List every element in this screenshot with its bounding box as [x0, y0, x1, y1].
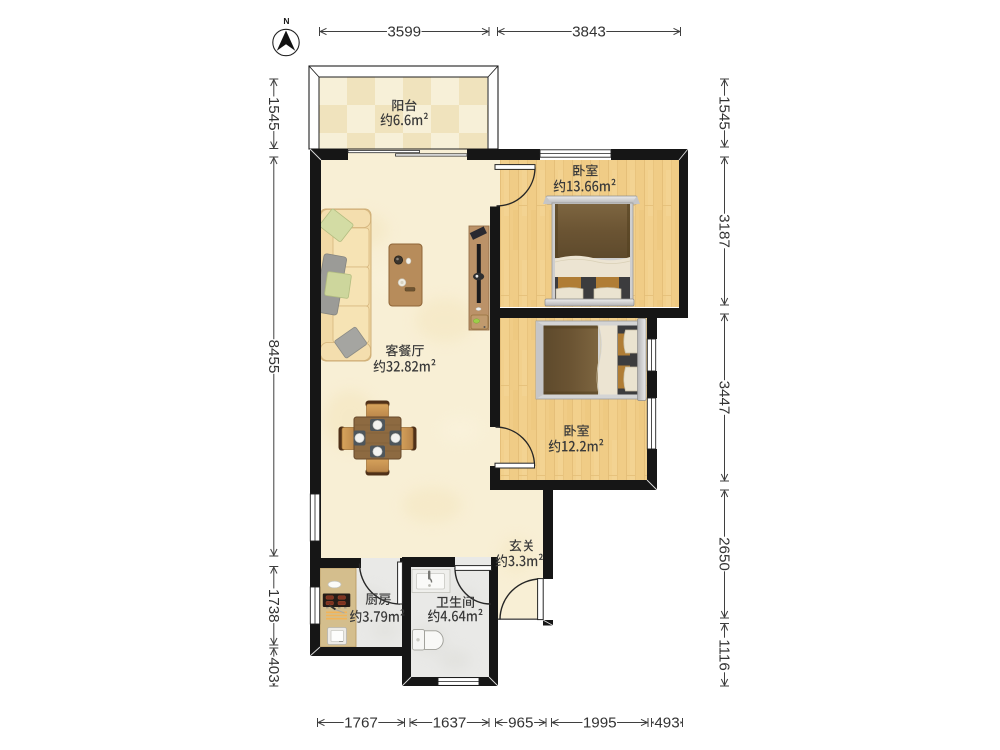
svg-text:N: N [283, 16, 289, 26]
svg-text:493: 493 [654, 715, 679, 732]
svg-text:3843: 3843 [572, 24, 606, 41]
svg-text:1995: 1995 [583, 715, 617, 732]
svg-text:403: 403 [265, 657, 282, 682]
svg-text:3599: 3599 [387, 24, 421, 41]
svg-text:1767: 1767 [344, 715, 378, 732]
svg-text:1116: 1116 [716, 639, 733, 671]
svg-text:965: 965 [508, 715, 533, 732]
svg-text:1637: 1637 [433, 715, 467, 732]
svg-text:3447: 3447 [716, 381, 733, 415]
svg-text:8455: 8455 [265, 340, 282, 374]
svg-text:1738: 1738 [265, 589, 282, 623]
svg-text:1545: 1545 [716, 96, 733, 130]
svg-text:1545: 1545 [265, 97, 282, 131]
svg-text:2650: 2650 [716, 537, 733, 571]
svg-text:3187: 3187 [716, 214, 733, 248]
